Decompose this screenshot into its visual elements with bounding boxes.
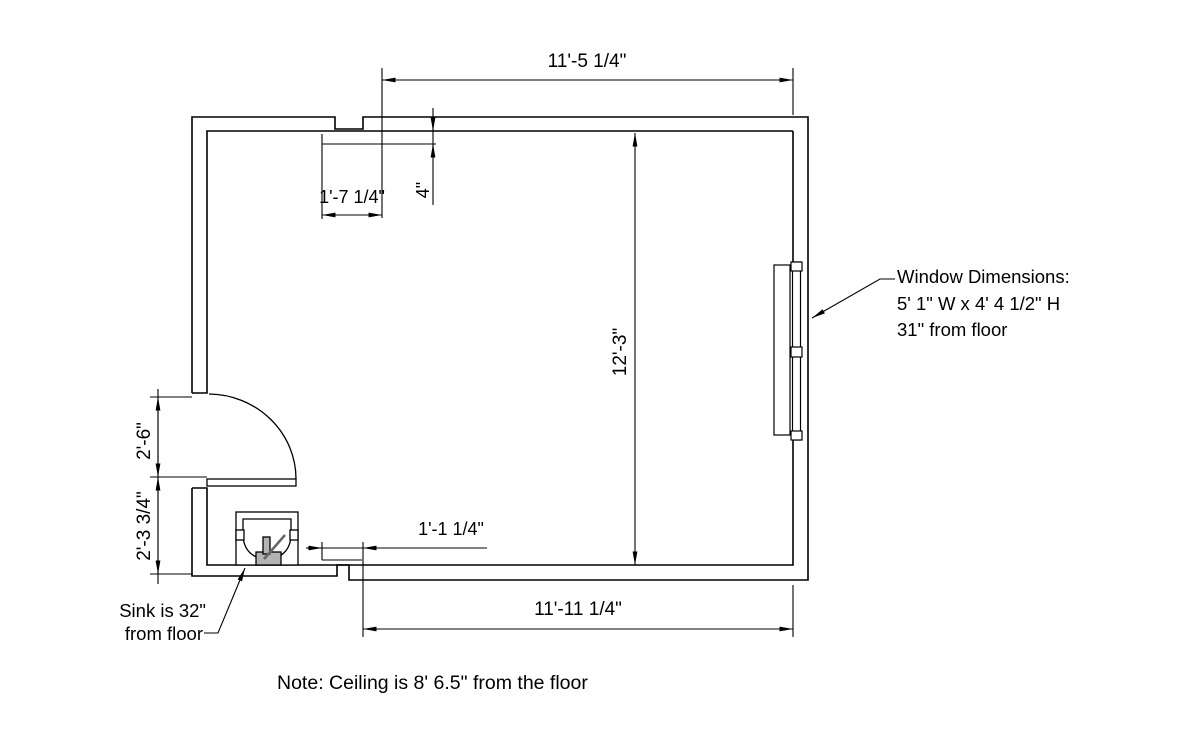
door-swing-arc xyxy=(209,394,296,479)
dimension-left-stack: 2'-6" 2'-3 3/4" xyxy=(134,389,207,584)
window-annotation-line2: 5' 1" W x 4' 4 1/2" H xyxy=(897,293,1060,314)
window-leader-line xyxy=(812,279,895,318)
floor-plan-drawing: 11'-5 1/4" 1'-7 1/4" 4" 12'-3" xyxy=(0,0,1188,747)
door-leaf xyxy=(207,479,296,486)
dimension-label-sink-to-wall: 1'-1 1/4" xyxy=(418,519,484,539)
dimension-top-width: 11'-5 1/4" xyxy=(382,51,793,218)
window-annotation-line1: Window Dimensions: xyxy=(897,266,1070,287)
dimension-label-door-to-wall: 2'-3 3/4" xyxy=(134,491,155,561)
ceiling-note: Note: Ceiling is 8' 6.5" from the floor xyxy=(277,672,588,694)
floor-plan-page: 11'-5 1/4" 1'-7 1/4" 4" 12'-3" xyxy=(0,0,1188,747)
window xyxy=(774,262,802,440)
sink xyxy=(236,512,298,565)
dimension-label-alcove-depth: 4" xyxy=(413,182,433,198)
dimension-alcove-width: 1'-7 1/4" xyxy=(319,134,385,219)
dimension-label-alcove-width: 1'-7 1/4" xyxy=(319,187,385,207)
sink-leader-line xyxy=(204,568,245,633)
walls xyxy=(192,117,808,580)
sink-right-tab xyxy=(290,530,298,540)
drawing-root: 11'-5 1/4" 1'-7 1/4" 4" 12'-3" xyxy=(119,51,1070,694)
dimension-room-depth: 12'-3" xyxy=(610,133,635,565)
sink-annotation-line1: Sink is 32" xyxy=(119,600,206,621)
sink-annotation: Sink is 32" from floor xyxy=(119,568,245,644)
sink-annotation-line2: from floor xyxy=(125,623,203,644)
window-sash-block-middle xyxy=(791,347,802,357)
door xyxy=(207,394,296,486)
dimensions: 11'-5 1/4" 1'-7 1/4" 4" 12'-3" xyxy=(134,51,793,637)
window-sash-block-bottom xyxy=(791,431,802,440)
dimension-sink-offset: 1'-1 1/4" xyxy=(306,519,487,560)
window-annotation-line3: 31" from floor xyxy=(897,319,1007,340)
window-sill xyxy=(774,265,790,435)
dimension-label-top-width: 11'-5 1/4" xyxy=(548,51,627,72)
sink-left-tab xyxy=(236,530,244,540)
window-sash-block-top xyxy=(791,262,802,271)
dimension-label-door-opening: 2'-6" xyxy=(134,422,155,460)
dimension-label-room-depth: 12'-3" xyxy=(610,328,631,376)
wall-inner-outline xyxy=(192,131,793,565)
wall-outer-outline xyxy=(192,117,808,580)
dimension-label-bottom-width: 11'-11 1/4" xyxy=(534,599,622,620)
dimension-bottom-width: 11'-11 1/4" xyxy=(363,542,793,637)
window-annotation: Window Dimensions: 5' 1" W x 4' 4 1/2" H… xyxy=(812,266,1070,340)
